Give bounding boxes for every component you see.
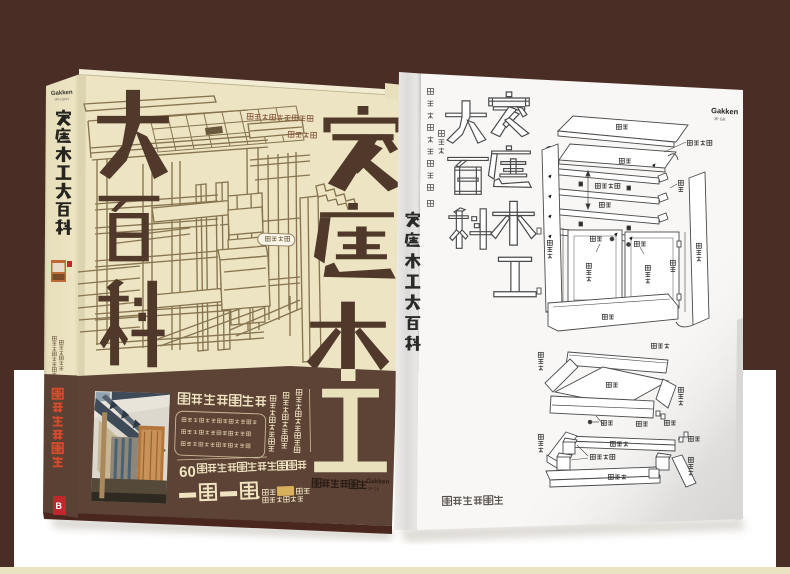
svg-text:Gakken: Gakken [51, 90, 73, 97]
svg-text:JP GK: JP GK [368, 486, 380, 491]
svg-text:Gakken: Gakken [366, 478, 390, 486]
svg-text:JPN GKN: JPN GKN [54, 97, 69, 102]
svg-text:JP GK: JP GK [714, 116, 726, 122]
svg-text:B: B [56, 501, 63, 511]
svg-text:Gakken: Gakken [711, 106, 739, 116]
svg-text:60: 60 [179, 463, 196, 481]
